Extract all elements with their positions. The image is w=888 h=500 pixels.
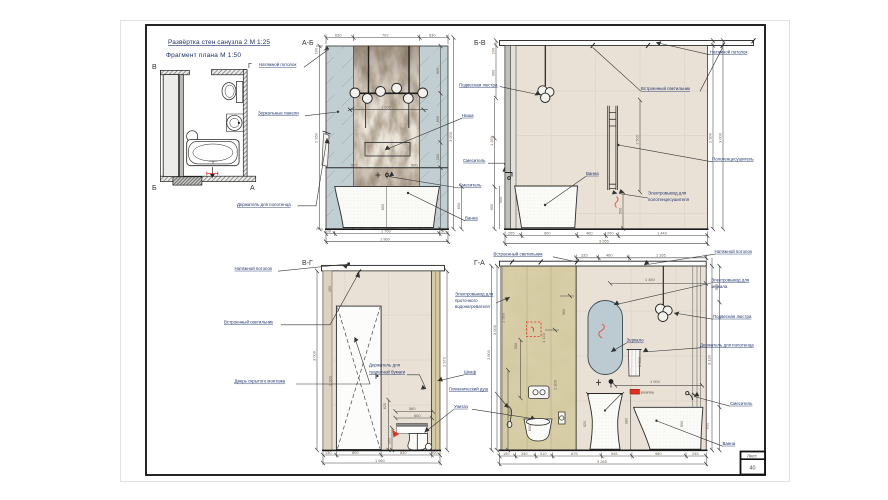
svg-text:3 000: 3 000	[492, 324, 497, 335]
svg-text:1 700: 1 700	[381, 229, 392, 234]
svg-text:2 900: 2 900	[707, 132, 712, 143]
svg-text:водонагревателя: водонагревателя	[455, 304, 490, 309]
svg-text:3 265: 3 265	[599, 239, 609, 244]
svg-text:650: 650	[456, 202, 461, 209]
svg-text:300: 300	[431, 450, 438, 455]
svg-text:460: 460	[606, 252, 613, 257]
svg-text:980: 980	[624, 417, 629, 424]
svg-text:150: 150	[503, 451, 510, 456]
svg-text:Смеситель: Смеситель	[459, 183, 482, 188]
svg-text:335: 335	[581, 252, 588, 257]
svg-text:Зеркало: Зеркало	[627, 338, 645, 343]
svg-text:Смеситель: Смеситель	[463, 158, 486, 163]
svg-text:Б: Б	[152, 185, 157, 192]
svg-text:Держатель для полотенца: Держатель для полотенца	[700, 342, 754, 347]
svg-text:1 960: 1 960	[375, 458, 386, 463]
svg-text:1 000: 1 000	[650, 379, 661, 384]
svg-text:Полотенцесушитель: Полотенцесушитель	[712, 157, 754, 162]
svg-text:300: 300	[387, 437, 392, 444]
svg-text:630: 630	[429, 32, 436, 37]
svg-text:Гигиенический душ: Гигиенический душ	[449, 386, 489, 391]
svg-text:Держатель для: Держатель для	[369, 363, 401, 368]
svg-text:Электровывод для: Электровывод для	[711, 277, 750, 282]
svg-text:Электровывод для: Электровывод для	[648, 191, 687, 196]
svg-text:245: 245	[692, 451, 699, 456]
svg-text:200: 200	[607, 230, 614, 235]
svg-text:Встроенный светильник: Встроенный светильник	[641, 86, 690, 91]
svg-text:600: 600	[414, 413, 421, 418]
svg-text:500: 500	[411, 162, 418, 167]
svg-text:100: 100	[325, 229, 332, 234]
svg-text:980: 980	[714, 283, 719, 290]
svg-text:900: 900	[490, 69, 495, 76]
svg-text:900: 900	[544, 230, 551, 235]
svg-text:830: 830	[400, 450, 407, 455]
svg-text:В: В	[152, 64, 157, 71]
svg-text:В-Г: В-Г	[302, 260, 313, 267]
svg-text:Г: Г	[248, 63, 252, 70]
svg-text:А: А	[250, 185, 255, 192]
svg-text:950: 950	[489, 203, 494, 210]
svg-text:1 450: 1 450	[645, 277, 656, 282]
svg-text:500: 500	[679, 420, 684, 427]
svg-text:1 165: 1 165	[656, 252, 666, 257]
svg-text:100: 100	[314, 47, 319, 54]
svg-text:545: 545	[611, 451, 618, 456]
svg-text:1 560: 1 560	[501, 312, 506, 323]
svg-text:900: 900	[435, 67, 440, 74]
svg-text:500: 500	[351, 162, 358, 167]
svg-text:Ванна: Ванна	[465, 215, 478, 220]
svg-text:Подвесная люстра: Подвесная люстра	[713, 314, 752, 319]
svg-text:Натяжной потолок: Натяжной потолок	[259, 62, 296, 67]
svg-text:А-Б: А-Б	[302, 40, 314, 47]
svg-text:3 130: 3 130	[706, 354, 711, 365]
svg-text:500: 500	[513, 342, 518, 349]
svg-text:туалетной бумаги: туалетной бумаги	[369, 369, 406, 374]
svg-text:1 960: 1 960	[380, 237, 391, 242]
svg-text:Ванна: Ванна	[723, 441, 736, 446]
svg-text:800: 800	[352, 450, 359, 455]
svg-text:Натяжной потолок: Натяжной потолок	[710, 49, 747, 54]
svg-text:920: 920	[582, 420, 587, 427]
svg-text:Держатель для полотенца: Держатель для полотенца	[237, 202, 291, 207]
svg-text:Натяжной потолок: Натяжной потолок	[715, 249, 752, 254]
svg-text:Шкаф: Шкаф	[464, 369, 476, 374]
svg-text:40: 40	[750, 466, 756, 472]
svg-text:980: 980	[655, 451, 662, 456]
svg-text:620: 620	[382, 402, 387, 409]
svg-text:600: 600	[527, 424, 532, 431]
svg-text:2 300: 2 300	[553, 379, 558, 390]
svg-text:Г-А: Г-А	[474, 260, 485, 267]
svg-text:Ванна: Ванна	[586, 171, 599, 176]
svg-text:310: 310	[540, 451, 547, 456]
svg-text:проточного: проточного	[455, 298, 478, 303]
svg-text:650: 650	[435, 115, 440, 122]
svg-text:1 500: 1 500	[634, 134, 639, 145]
svg-text:1 350: 1 350	[489, 135, 494, 146]
svg-text:900: 900	[498, 196, 503, 203]
svg-text:875: 875	[571, 451, 578, 456]
svg-text:340: 340	[521, 451, 528, 456]
svg-text:Унитаз: Унитаз	[454, 404, 468, 409]
svg-text:Натяжной потолок: Натяжной потолок	[235, 266, 272, 271]
svg-text:Смеситель: Смеситель	[730, 401, 753, 406]
svg-text:3 000: 3 000	[717, 132, 722, 143]
svg-text:Подвесная люстра: Подвесная люстра	[459, 82, 498, 87]
svg-text:100: 100	[490, 47, 495, 54]
svg-text:Фрагмент плана М 1:50: Фрагмент плана М 1:50	[166, 52, 241, 59]
svg-text:580: 580	[409, 406, 416, 411]
svg-text:1 140: 1 140	[541, 332, 546, 343]
svg-text:2 950: 2 950	[314, 132, 319, 143]
svg-text:460: 460	[586, 230, 593, 235]
svg-text:3 000: 3 000	[311, 350, 316, 361]
svg-text:Б-В: Б-В	[474, 40, 486, 47]
svg-text:Встроенный светильник: Встроенный светильник	[224, 319, 273, 324]
svg-text:702: 702	[382, 32, 389, 37]
svg-text:Электровывод для: Электровывод для	[455, 291, 494, 296]
svg-text:650: 650	[705, 422, 710, 429]
svg-text:2 970: 2 970	[441, 356, 446, 367]
svg-text:розетка: розетка	[641, 391, 654, 395]
svg-text:600: 600	[380, 203, 385, 210]
svg-text:3 265: 3 265	[597, 459, 607, 464]
svg-text:Дверь скрытого монтажа: Дверь скрытого монтажа	[235, 379, 286, 384]
svg-text:3 000: 3 000	[448, 131, 453, 142]
svg-text:полотенцесушителя: полотенцесушителя	[648, 197, 690, 202]
svg-text:500: 500	[617, 207, 622, 214]
svg-text:Лист: Лист	[747, 454, 758, 459]
svg-text:Развёртка стен санузла 2 М 1:2: Развёртка стен санузла 2 М 1:25	[168, 39, 270, 46]
svg-text:Ниша: Ниша	[462, 113, 474, 118]
svg-text:130: 130	[325, 450, 332, 455]
svg-text:265: 265	[508, 230, 515, 235]
svg-text:250: 250	[435, 153, 440, 160]
svg-text:2 080: 2 080	[637, 356, 642, 367]
svg-text:2 300: 2 300	[328, 375, 333, 386]
svg-text:1 440: 1 440	[657, 230, 668, 235]
svg-text:2 900: 2 900	[486, 349, 491, 360]
svg-text:Зеркальные панели: Зеркальные панели	[258, 111, 299, 116]
svg-text:560: 560	[561, 308, 566, 315]
svg-text:Встроенный светильник: Встроенный светильник	[493, 251, 542, 256]
svg-text:400: 400	[327, 285, 332, 292]
svg-text:1 200: 1 200	[381, 104, 392, 109]
svg-text:630: 630	[335, 32, 342, 37]
